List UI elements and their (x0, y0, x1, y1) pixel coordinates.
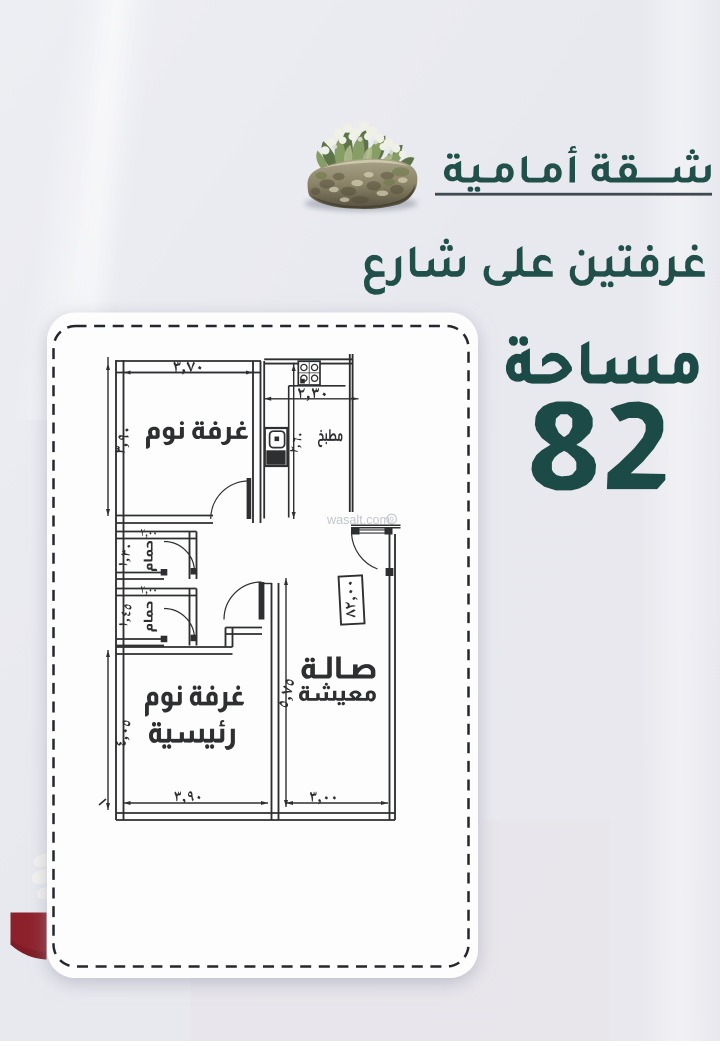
svg-text:wasalt.com: wasalt.com (326, 513, 390, 527)
